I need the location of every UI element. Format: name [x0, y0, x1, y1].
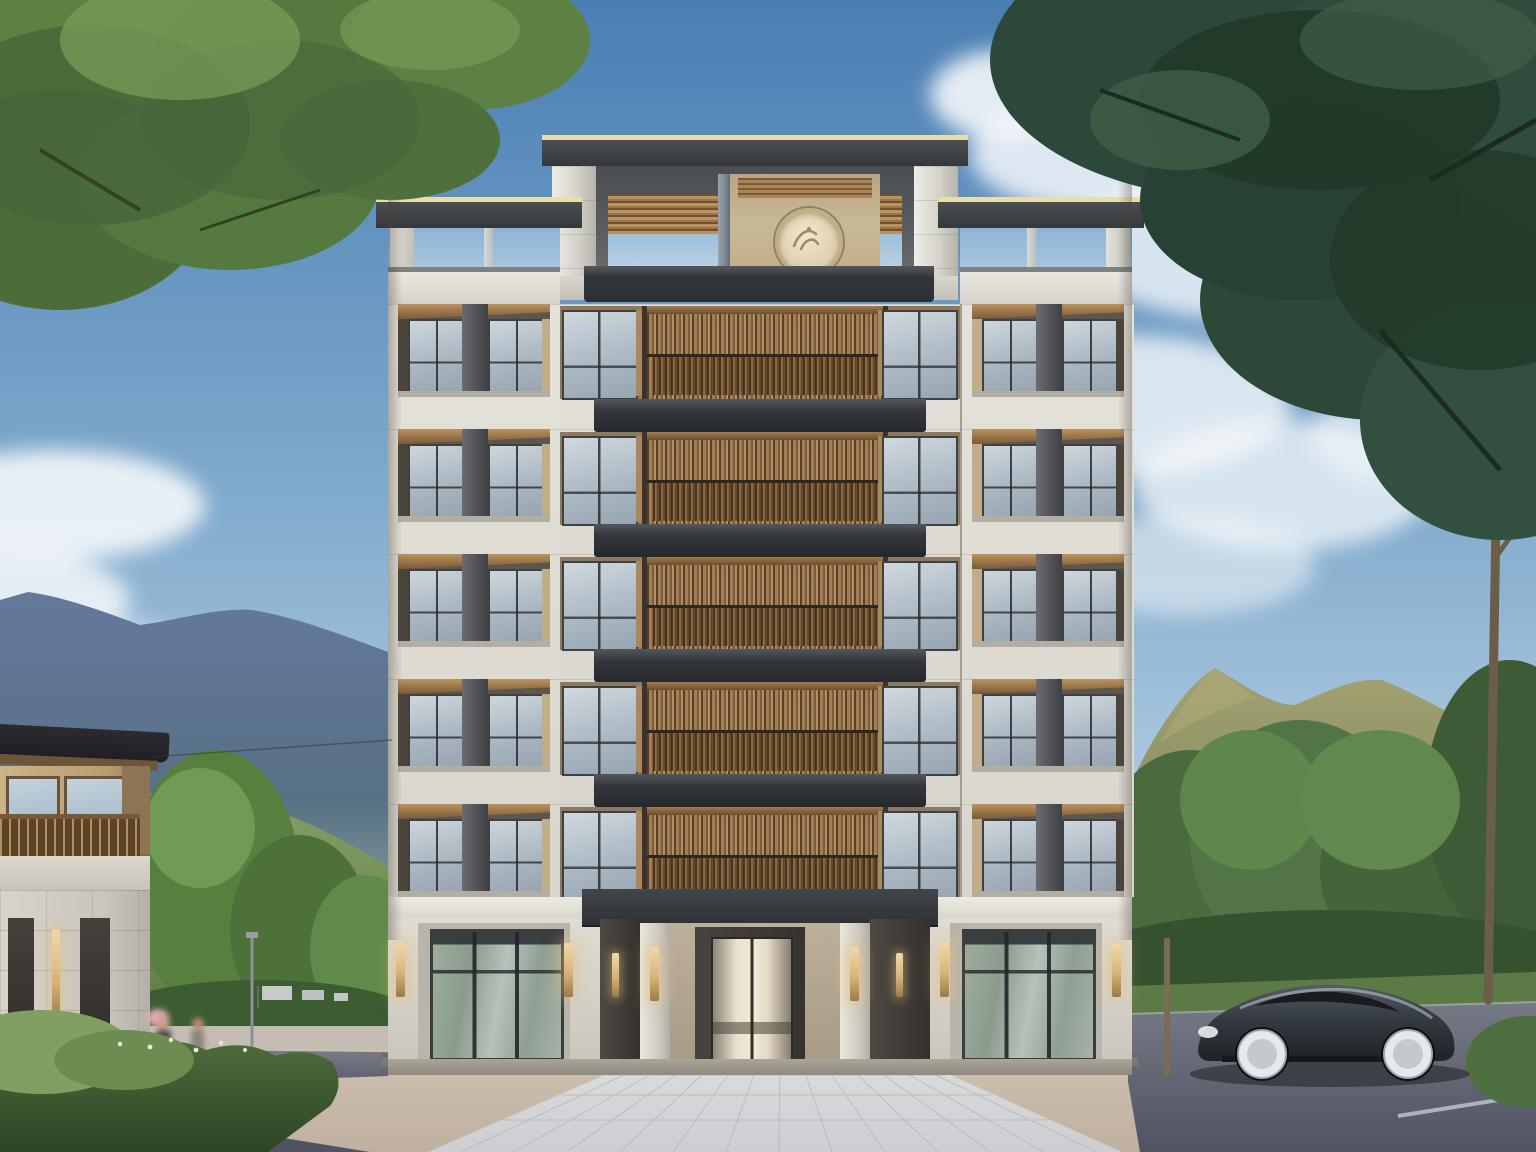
- car-wheel-front: [1235, 1027, 1289, 1081]
- car-headlight: [1198, 1026, 1218, 1038]
- street-tree-trunk: [1164, 938, 1170, 1076]
- tree-canopy-top-right: [990, 0, 1536, 540]
- foreground-elements: [0, 0, 1536, 1152]
- tree-canopy-top-left: [0, 0, 590, 310]
- street-light-pole: [246, 932, 258, 1052]
- car-wheel-rear: [1381, 1027, 1435, 1081]
- utility-wire: [150, 740, 392, 757]
- architectural-rendering-scene: [0, 0, 1536, 1152]
- sedan-car: [1190, 985, 1470, 1087]
- corner-bush-right: [1466, 1016, 1536, 1108]
